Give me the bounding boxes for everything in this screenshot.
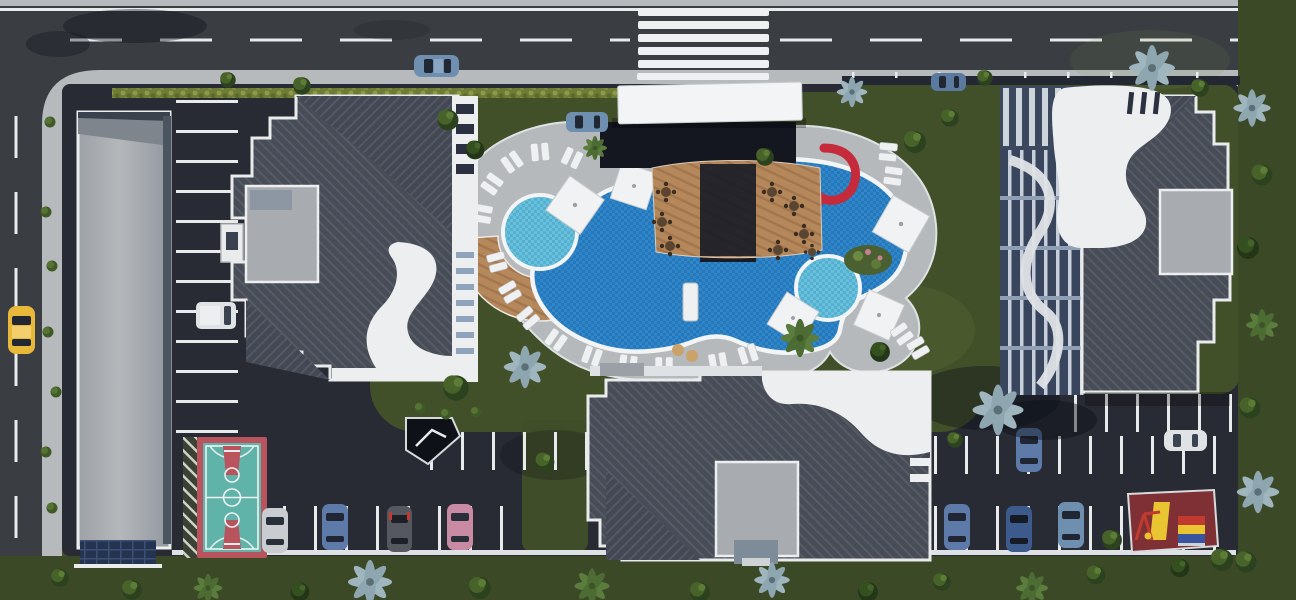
green-tree — [1237, 237, 1259, 259]
palm-tree — [1233, 89, 1270, 126]
south-apartment-block — [588, 363, 931, 566]
green-tree — [1211, 549, 1233, 571]
playground — [1128, 490, 1218, 552]
car-blue-road — [414, 55, 459, 77]
bush — [441, 409, 452, 420]
bush — [45, 117, 56, 128]
palm-tree — [1237, 471, 1280, 514]
car-pink — [447, 504, 473, 550]
green-tree — [1191, 79, 1209, 97]
green-tree — [1240, 398, 1261, 419]
car-blue-small — [931, 73, 966, 91]
entrance-canopy — [618, 82, 803, 124]
green-tree — [220, 72, 235, 87]
bush — [415, 403, 426, 414]
walkway-over-deck — [700, 164, 756, 256]
car-blue-parked-3 — [1058, 502, 1084, 548]
green-tree — [122, 580, 142, 600]
site-plan-render — [0, 0, 1296, 600]
green-tree — [1102, 530, 1122, 550]
bush — [41, 207, 52, 218]
spa-garden — [844, 245, 892, 275]
green-tree — [51, 569, 69, 587]
pool-stool — [686, 350, 698, 362]
green-tree — [1171, 559, 1190, 578]
green-tree — [536, 453, 555, 472]
balcony-strip — [452, 96, 478, 382]
green-tree — [870, 342, 890, 362]
play-cube — [1178, 516, 1205, 546]
green-palm-tree — [781, 319, 819, 357]
green-palm-tree — [1246, 309, 1278, 341]
green-tree — [933, 573, 951, 591]
car-white-toprow — [1164, 430, 1207, 451]
court-access-path — [183, 437, 197, 558]
bush — [41, 447, 52, 458]
car-blue-entrance — [566, 112, 608, 132]
basketball-court — [183, 437, 267, 558]
palm-tree — [837, 77, 868, 108]
white-van — [196, 302, 236, 329]
green-tree — [443, 375, 468, 400]
long-flat-roof-building — [74, 112, 171, 568]
car-silver — [262, 508, 288, 553]
car-navy — [1006, 506, 1032, 552]
green-palm-tree — [583, 136, 607, 160]
green-tree — [469, 577, 491, 599]
bush — [47, 261, 58, 272]
aerial-render-scene — [0, 0, 1296, 600]
car-gray — [387, 506, 412, 552]
west-apartment-block — [232, 96, 478, 382]
palm-tree — [754, 562, 790, 598]
green-tree — [756, 148, 774, 166]
bush — [471, 407, 482, 418]
bush — [47, 503, 58, 514]
green-tree — [466, 141, 485, 160]
bush — [43, 327, 54, 338]
green-tree — [1236, 552, 1257, 573]
solar-panels — [80, 540, 156, 564]
palm-tree — [504, 346, 547, 389]
pool-bridge — [683, 283, 698, 321]
green-tree — [941, 109, 959, 127]
car-blue-parked-1 — [322, 504, 348, 550]
green-tree — [438, 110, 459, 131]
green-tree — [904, 131, 926, 153]
green-tree — [977, 70, 992, 85]
pool-stool — [672, 344, 684, 356]
palm-tree — [1129, 45, 1175, 91]
green-tree — [1087, 566, 1106, 585]
green-tree — [293, 77, 311, 95]
palm-tree — [973, 385, 1024, 436]
green-tree — [947, 432, 962, 447]
green-tree — [1252, 165, 1273, 186]
bush — [51, 387, 62, 398]
guard-booth — [221, 224, 243, 262]
yellow-taxi — [8, 306, 35, 354]
car-blue-parked-2 — [944, 504, 970, 550]
east-apartment-block — [1000, 85, 1232, 406]
roof-gray-box — [1160, 190, 1232, 274]
